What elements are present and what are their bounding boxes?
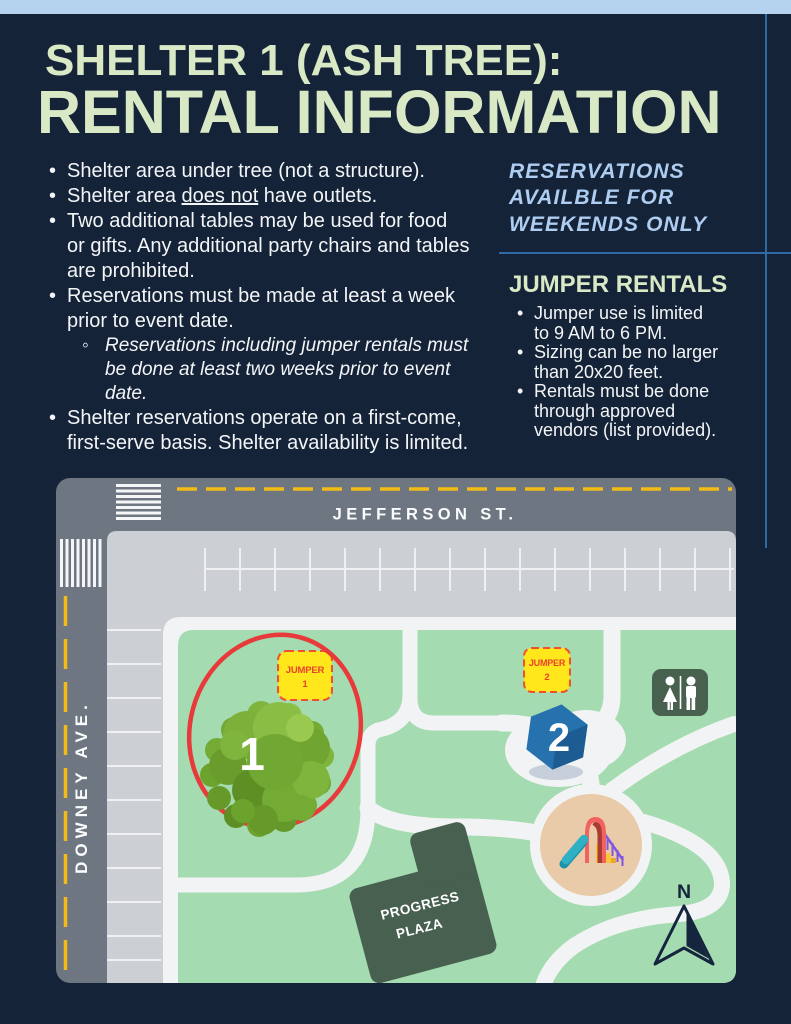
svg-text:1: 1 [302,679,308,690]
svg-text:1: 1 [239,728,265,780]
svg-text:N: N [677,881,691,903]
svg-text:JUMPER: JUMPER [286,665,325,676]
svg-text:JEFFERSON ST.: JEFFERSON ST. [333,506,518,524]
svg-text:DOWNEY AVE.: DOWNEY AVE. [72,700,91,874]
svg-text:JUMPER: JUMPER [529,658,566,668]
svg-text:2: 2 [548,716,570,760]
svg-text:2: 2 [544,672,549,683]
